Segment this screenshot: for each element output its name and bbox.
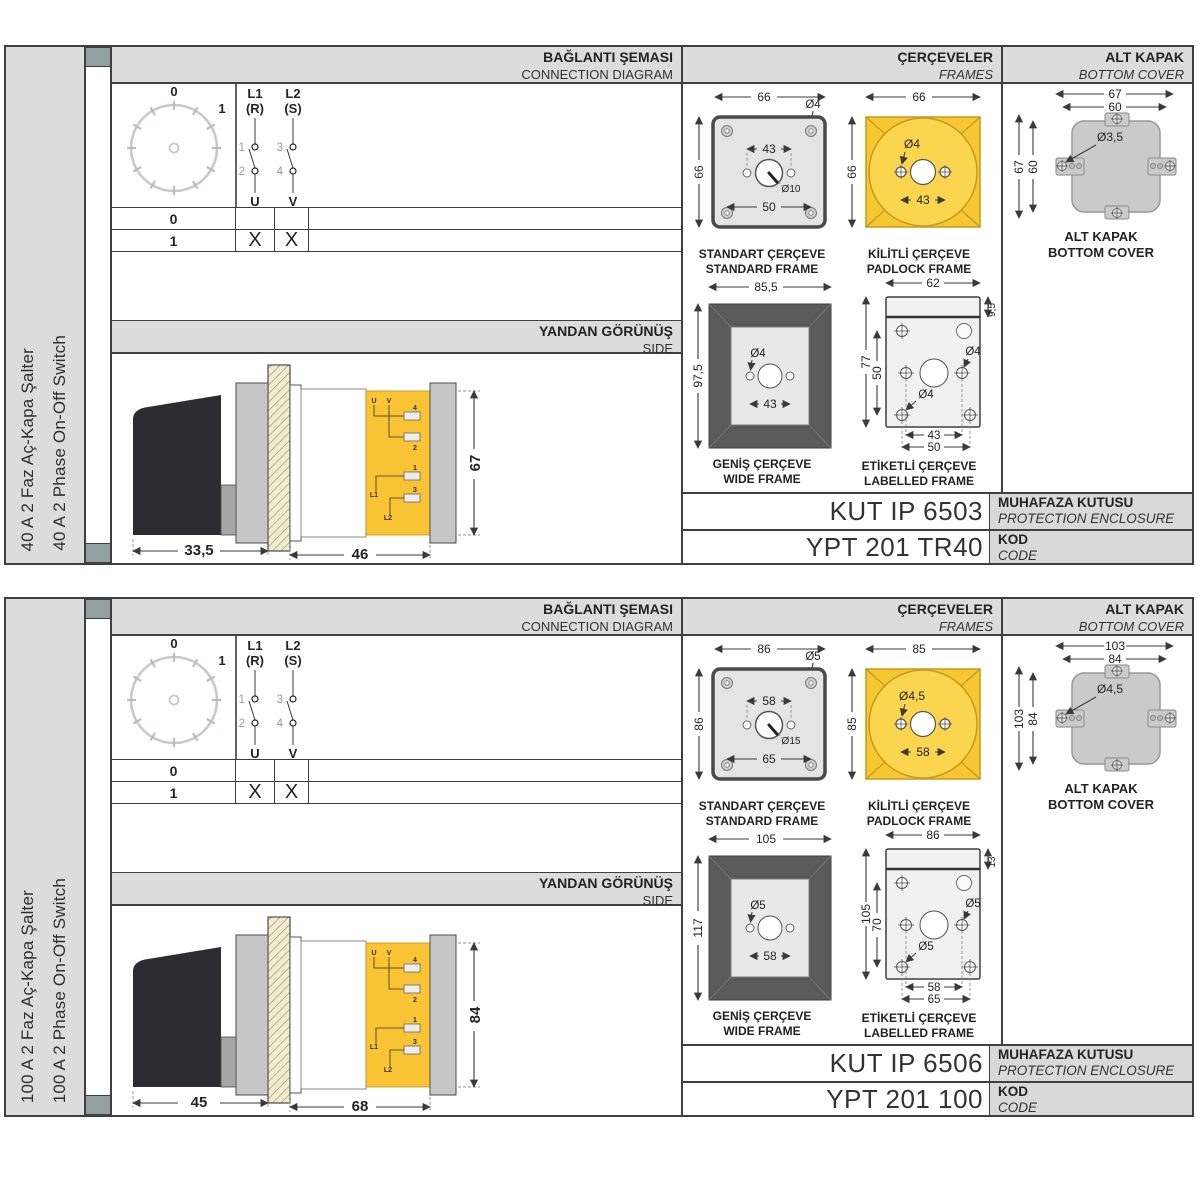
row1-position: 1	[112, 230, 236, 251]
frames-header: ÇERÇEVELER FRAMES	[683, 599, 1001, 636]
terminal-1: 1	[239, 694, 245, 706]
product-name-tr: 40 A 2 Faz Aç-Kapa Şalter	[18, 348, 38, 551]
binding-square-bottom	[86, 1095, 110, 1115]
connection-header-en: CONNECTION DIAGRAM	[112, 66, 673, 83]
tb-u: U	[371, 950, 376, 957]
std-center-dia: Ø15	[782, 736, 801, 747]
frames-header: ÇERÇEVELER FRAMES	[683, 47, 1001, 84]
pad-span: 58	[916, 745, 930, 759]
contact-l1-label: L1	[247, 638, 262, 653]
binding-strip	[86, 47, 112, 563]
dial-position-1: 1	[218, 653, 225, 668]
row0-spacer	[309, 760, 681, 781]
code-row: YPT 201 TR40 KOD CODE	[683, 529, 1192, 563]
row1-v: X	[275, 230, 309, 251]
lab-hole-dia2: Ø5	[918, 941, 933, 953]
table-row-1: 1 X X	[112, 782, 681, 804]
wide-frame-caption: GENİŞ ÇERÇEVE WIDE FRAME	[685, 1009, 839, 1038]
connection-header-tr: BAĞLANTI ŞEMASI	[112, 601, 673, 618]
cov-outer-h: 67	[1012, 160, 1026, 174]
connection-header-tr: BAĞLANTI ŞEMASI	[112, 49, 673, 66]
cov-caption-en: BOTTOM COVER	[1012, 797, 1190, 813]
std-hole-dia: Ø5	[805, 651, 820, 663]
labelled-frame-drawing: 86 13 Ø5 Ø5 105 70	[840, 825, 998, 1007]
bottom-cover-drawing: 103 84 103 84 Ø4,5	[1008, 637, 1200, 779]
wide-frame-drawing: 85,5 97,5 Ø4 43	[689, 277, 841, 455]
tb-v: V	[387, 950, 392, 957]
standard-frame-caption: STANDART ÇERÇEVE STANDARD FRAME	[685, 799, 839, 828]
terminal-3: 3	[277, 694, 283, 706]
connection-diagram-header: BAĞLANTI ŞEMASI CONNECTION DIAGRAM	[112, 47, 681, 84]
wide-frame-drawing: 105 117 Ø5 58	[689, 829, 841, 1007]
switching-table: 0 1 X X	[112, 207, 681, 252]
standard-frame-drawing: 86 Ø5 86 58 Ø15 65	[689, 639, 841, 797]
row1-spacer	[309, 230, 681, 251]
enclosure-row: KUT IP 6503 MUHAFAZA KUTUSU PROTECTION E…	[683, 492, 1192, 529]
lab-hole-dia: Ø4	[965, 346, 981, 358]
tb-4: 4	[413, 957, 417, 964]
std-caption-tr: STANDART ÇERÇEVE	[685, 247, 839, 262]
cov-outer-h: 103	[1012, 709, 1026, 729]
terminal-3: 3	[277, 142, 283, 154]
wide-hole-dia: Ø5	[750, 900, 765, 912]
code-label: KOD CODE	[989, 1083, 1192, 1115]
pad-caption-tr: KİLİTLİ ÇERÇEVE	[839, 799, 999, 814]
code-value: YPT 201 100	[683, 1083, 989, 1115]
lab-caption-tr: ETİKETLİ ÇERÇEVE	[839, 459, 999, 474]
frames-header-tr: ÇERÇEVELER	[683, 601, 993, 618]
product-name-en: 40 A 2 Phase On-Off Switch	[50, 335, 70, 551]
std-caption-tr: STANDART ÇERÇEVE	[685, 799, 839, 814]
std-width: 66	[757, 90, 771, 104]
pad-height: 85	[845, 717, 859, 731]
std-caption-en: STANDARD FRAME	[685, 814, 839, 829]
side-header-tr: YANDAN GÖRÜNÜŞ	[112, 875, 673, 892]
cov-inner-w: 84	[1108, 652, 1122, 666]
wide-caption-en: WIDE FRAME	[685, 472, 839, 487]
contact-l2-phase: (S)	[284, 653, 301, 668]
pad-span: 43	[916, 193, 930, 207]
wide-width: 105	[756, 832, 776, 846]
terminal-1: 1	[239, 142, 245, 154]
table-row-1: 1 X X	[112, 230, 681, 252]
lab-inner-height: 70	[870, 918, 884, 932]
cov-hole-dia: Ø3,5	[1097, 130, 1123, 144]
dim-height: 67	[467, 455, 484, 472]
pad-caption-tr: KİLİTLİ ÇERÇEVE	[839, 247, 999, 262]
binding-strip	[86, 599, 112, 1115]
contact-l1-phase: (R)	[246, 653, 264, 668]
code-label: KOD CODE	[989, 531, 1192, 563]
tb-u: U	[371, 398, 376, 405]
wide-hole-dia: Ø4	[750, 348, 766, 360]
contact-output-v: V	[289, 194, 298, 207]
contact-l1-phase: (R)	[246, 101, 264, 116]
enclosure-value: KUT IP 6506	[683, 1046, 989, 1081]
code-row: YPT 201 100 KOD CODE	[683, 1081, 1192, 1115]
cov-caption-tr: ALT KAPAK	[1012, 781, 1190, 797]
labelled-frame-caption: ETİKETLİ ÇERÇEVE LABELLED FRAME	[839, 1011, 999, 1040]
tb-l1: L1	[370, 1044, 378, 1051]
wide-height: 97,5	[691, 364, 705, 388]
row0-u	[236, 208, 275, 229]
tb-v: V	[387, 398, 392, 405]
cover-header-en: BOTTOM COVER	[1003, 618, 1184, 635]
product-label-strip: 100 A 2 Faz Aç-Kapa Şalter 100 A 2 Phase…	[6, 599, 86, 1115]
lab-hole-dia: Ø5	[965, 898, 980, 910]
tb-1: 1	[413, 1017, 417, 1024]
column-divider-frames	[681, 47, 683, 563]
terminal-block: U V 4 2 1 3 L1 L2	[366, 391, 430, 535]
dim-height: 84	[467, 1006, 484, 1023]
cov-caption-tr: ALT KAPAK	[1012, 229, 1190, 245]
lab-strip: 9,5	[987, 303, 998, 317]
cov-outer-w: 67	[1108, 87, 1122, 101]
terminal-2: 2	[239, 718, 245, 730]
contact-output-u: U	[250, 746, 259, 759]
switch-handle	[133, 395, 221, 535]
dial-position-0: 0	[170, 84, 177, 99]
bottom-cover-header: ALT KAPAK BOTTOM COVER	[1003, 599, 1192, 636]
code-value: YPT 201 TR40	[683, 531, 989, 563]
contact-l1-label: L1	[247, 86, 262, 101]
product-panel: 100 A 2 Faz Aç-Kapa Şalter 100 A 2 Phase…	[4, 597, 1194, 1117]
enclosure-label-en: PROTECTION ENCLOSURE	[998, 511, 1192, 527]
row0-position: 0	[112, 760, 236, 781]
enclosure-label: MUHAFAZA KUTUSU PROTECTION ENCLOSURE	[989, 494, 1192, 529]
dim-front: 33,5	[184, 542, 213, 559]
tb-l2: L2	[384, 515, 392, 522]
switch-dial: 0 1	[127, 636, 226, 747]
cover-header-tr: ALT KAPAK	[1003, 49, 1184, 66]
pad-hole-dia: Ø4,5	[899, 689, 925, 703]
row0-spacer	[309, 208, 681, 229]
pad-width: 66	[912, 90, 926, 104]
row1-v: X	[275, 782, 309, 803]
switch-handle	[133, 947, 221, 1087]
frames-header-en: FRAMES	[683, 66, 993, 83]
row0-v	[275, 760, 309, 781]
std-center-dia: Ø10	[782, 184, 801, 195]
wide-caption-tr: GENİŞ ÇERÇEVE	[685, 457, 839, 472]
frames-header-en: FRAMES	[683, 618, 993, 635]
contact-l2-label: L2	[285, 638, 300, 653]
contact-l2: L2 (S) V 3 4	[277, 638, 302, 759]
wide-frame-caption: GENİŞ ÇERÇEVE WIDE FRAME	[685, 457, 839, 486]
lab-top-width: 86	[926, 828, 940, 842]
connection-diagram-header: BAĞLANTI ŞEMASI CONNECTION DIAGRAM	[112, 599, 681, 636]
std-top-span: 43	[762, 142, 776, 156]
cov-inner-h: 60	[1026, 160, 1040, 174]
contact-l2: L2 (S) V 3 4	[277, 86, 302, 207]
tb-l2: L2	[384, 1067, 392, 1074]
binding-square-top	[86, 47, 110, 67]
std-top-span: 58	[762, 694, 776, 708]
std-bottom-span: 65	[762, 752, 776, 766]
bottom-cover-caption: ALT KAPAK BOTTOM COVER	[1012, 781, 1190, 813]
row1-spacer	[309, 782, 681, 803]
dim-body: 46	[352, 546, 369, 562]
tb-1: 1	[413, 465, 417, 472]
column-divider-frames	[681, 599, 683, 1115]
wide-span: 58	[763, 949, 777, 963]
tb-3: 3	[413, 487, 417, 494]
side-header-en: SIDE	[112, 340, 673, 357]
enclosure-label: MUHAFAZA KUTUSU PROTECTION ENCLOSURE	[989, 1046, 1192, 1081]
column-divider-cover	[1001, 599, 1003, 1044]
terminal-4: 4	[277, 166, 284, 178]
std-bottom-span: 50	[762, 200, 776, 214]
code-label-en: CODE	[998, 548, 1192, 564]
wide-span: 43	[763, 397, 777, 411]
table-row-0: 0	[112, 208, 681, 230]
code-label-en: CODE	[998, 1100, 1192, 1116]
side-view-header: YANDAN GÖRÜNÜŞ SIDE	[112, 320, 681, 354]
row0-v	[275, 208, 309, 229]
contact-output-u: U	[250, 194, 259, 207]
dial-position-0: 0	[170, 636, 177, 651]
frames-header-tr: ÇERÇEVELER	[683, 49, 993, 66]
bottom-cover-drawing: 67 60 67 60 Ø3,5	[1008, 85, 1200, 227]
bottom-cover-caption: ALT KAPAK BOTTOM COVER	[1012, 229, 1190, 261]
row0-position: 0	[112, 208, 236, 229]
padlock-frame-drawing: 66 66 Ø4 43	[842, 87, 994, 245]
standard-frame-caption: STANDART ÇERÇEVE STANDARD FRAME	[685, 247, 839, 276]
lab-inner-height: 50	[870, 366, 884, 380]
binding-square-top	[86, 599, 110, 619]
side-header-tr: YANDAN GÖRÜNÜŞ	[112, 323, 673, 340]
switch-dial: 0 1	[127, 84, 226, 195]
code-label-tr: KOD	[998, 532, 1192, 548]
connection-diagram-drawing: 0 1 L1 (R) U 1 2 L2 (S) V 3 4	[112, 636, 681, 759]
std-hole-dia: Ø4	[805, 99, 821, 111]
lab-caption-tr: ETİKETLİ ÇERÇEVE	[839, 1011, 999, 1026]
row0-u	[236, 760, 275, 781]
dim-body: 68	[352, 1098, 369, 1114]
wide-caption-en: WIDE FRAME	[685, 1024, 839, 1039]
product-name-en: 100 A 2 Phase On-Off Switch	[50, 878, 70, 1103]
contact-output-v: V	[289, 746, 298, 759]
dim-front: 45	[191, 1094, 208, 1111]
enclosure-value: KUT IP 6503	[683, 494, 989, 529]
enclosure-label-en: PROTECTION ENCLOSURE	[998, 1063, 1192, 1079]
side-view-drawing: U V 4 2 1 3 L1 L2 67 33,	[118, 357, 588, 562]
codes-block: KUT IP 6503 MUHAFAZA KUTUSU PROTECTION E…	[683, 492, 1192, 563]
standard-frame-drawing: 66 Ø4 66 43 Ø10 50	[689, 87, 841, 245]
lab-caption-en: LABELLED FRAME	[839, 1026, 999, 1041]
std-caption-en: STANDARD FRAME	[685, 262, 839, 277]
enclosure-label-tr: MUHAFAZA KUTUSU	[998, 495, 1192, 511]
contact-l1: L1 (R) U 1 2	[239, 638, 264, 759]
row1-u: X	[236, 782, 275, 803]
product-label-strip: 40 A 2 Faz Aç-Kapa Şalter 40 A 2 Phase O…	[6, 47, 86, 563]
column-divider-cover	[1001, 47, 1003, 492]
wide-caption-tr: GENİŞ ÇERÇEVE	[685, 1009, 839, 1024]
contact-l2-label: L2	[285, 86, 300, 101]
code-label-tr: KOD	[998, 1084, 1192, 1100]
tb-3: 3	[413, 1039, 417, 1046]
tb-2: 2	[413, 997, 417, 1004]
side-view-header: YANDAN GÖRÜNÜŞ SIDE	[112, 872, 681, 906]
lab-span2: 50	[928, 442, 941, 454]
padlock-frame-caption: KİLİTLİ ÇERÇEVE PADLOCK FRAME	[839, 247, 999, 276]
wide-width: 85,5	[754, 280, 778, 294]
enclosure-label-tr: MUHAFAZA KUTUSU	[998, 1047, 1192, 1063]
tb-l1: L1	[370, 492, 378, 499]
lab-hole-dia2: Ø4	[918, 389, 934, 401]
dial-position-1: 1	[218, 101, 225, 116]
std-height: 86	[692, 717, 706, 731]
cov-inner-h: 84	[1026, 712, 1040, 726]
pad-width: 85	[912, 642, 926, 656]
cov-inner-w: 60	[1108, 100, 1122, 114]
padlock-frame-drawing: 85 85 Ø4,5 58	[842, 639, 994, 797]
lab-strip: 13	[987, 856, 998, 868]
pad-height: 66	[845, 165, 859, 179]
product-name-tr: 100 A 2 Faz Aç-Kapa Şalter	[18, 890, 38, 1103]
labelled-frame-drawing: 62 9,5 Ø4 Ø4 77 50	[840, 273, 998, 455]
connection-header-en: CONNECTION DIAGRAM	[112, 618, 673, 635]
labelled-frame-caption: ETİKETLİ ÇERÇEVE LABELLED FRAME	[839, 459, 999, 488]
cov-hole-dia: Ø4,5	[1097, 682, 1123, 696]
lab-caption-en: LABELLED FRAME	[839, 474, 999, 489]
binding-square-bottom	[86, 543, 110, 563]
terminal-block: U V 4 2 1 3 L1 L2	[366, 943, 430, 1087]
tb-4: 4	[413, 405, 417, 412]
connection-diagram-drawing: 0 1 L1 (R) U 1 2 L2 (S) V 3 4	[112, 84, 681, 207]
cover-header-tr: ALT KAPAK	[1003, 601, 1184, 618]
wide-height: 117	[691, 918, 705, 937]
tb-2: 2	[413, 445, 417, 452]
std-height: 66	[692, 165, 706, 179]
std-width: 86	[757, 642, 771, 656]
row1-position: 1	[112, 782, 236, 803]
bottom-cover-header: ALT KAPAK BOTTOM COVER	[1003, 47, 1192, 84]
terminal-2: 2	[239, 166, 245, 178]
side-view-drawing: U V 4 2 1 3 L1 L2 84 45	[118, 909, 588, 1114]
contact-l1: L1 (R) U 1 2	[239, 86, 264, 207]
cover-header-en: BOTTOM COVER	[1003, 66, 1184, 83]
cov-caption-en: BOTTOM COVER	[1012, 245, 1190, 261]
lab-span2: 65	[928, 994, 941, 1006]
codes-block: KUT IP 6506 MUHAFAZA KUTUSU PROTECTION E…	[683, 1044, 1192, 1115]
switching-table: 0 1 X X	[112, 759, 681, 804]
pad-hole-dia: Ø4	[904, 137, 920, 151]
contact-l2-phase: (S)	[284, 101, 301, 116]
terminal-4: 4	[277, 718, 284, 730]
product-panel: 40 A 2 Faz Aç-Kapa Şalter 40 A 2 Phase O…	[4, 45, 1194, 565]
cov-outer-w: 103	[1105, 639, 1125, 653]
enclosure-row: KUT IP 6506 MUHAFAZA KUTUSU PROTECTION E…	[683, 1044, 1192, 1081]
side-header-en: SIDE	[112, 892, 673, 909]
padlock-frame-caption: KİLİTLİ ÇERÇEVE PADLOCK FRAME	[839, 799, 999, 828]
lab-top-width: 62	[926, 276, 940, 290]
table-row-0: 0	[112, 760, 681, 782]
row1-u: X	[236, 230, 275, 251]
